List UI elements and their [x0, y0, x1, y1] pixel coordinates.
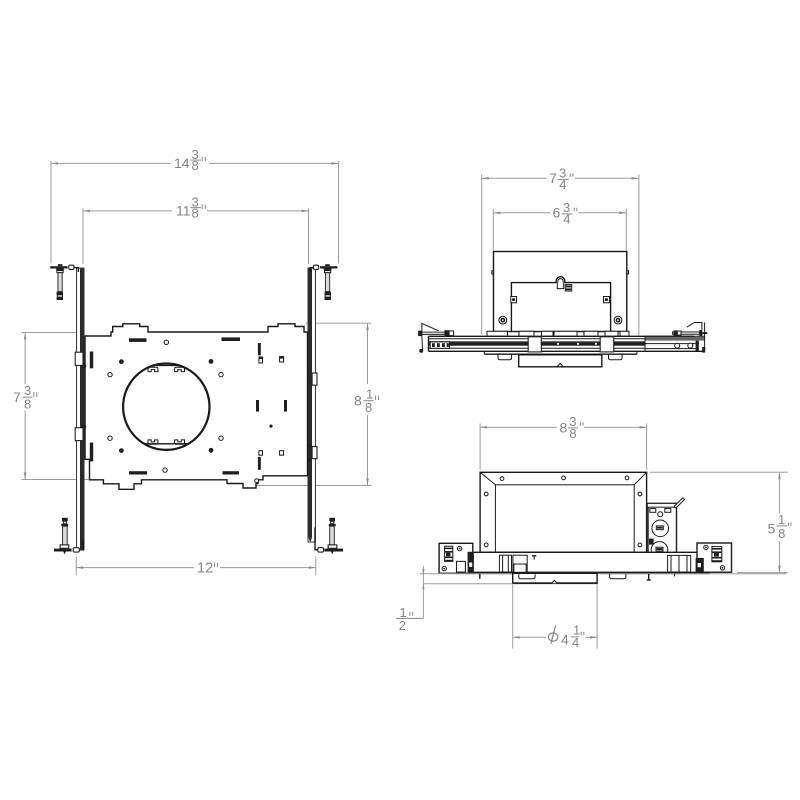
svg-text:7: 7	[13, 389, 21, 405]
svg-text:12: 12	[197, 561, 213, 577]
svg-text:8: 8	[192, 206, 199, 221]
svg-text:4: 4	[563, 212, 570, 227]
svg-text:11: 11	[176, 202, 191, 218]
svg-text:4: 4	[561, 632, 569, 648]
svg-text:8: 8	[569, 426, 576, 441]
svg-text:4: 4	[559, 177, 566, 192]
svg-text:8: 8	[778, 526, 785, 541]
svg-text:8: 8	[192, 158, 199, 173]
svg-text:7: 7	[549, 170, 557, 186]
svg-text:1: 1	[778, 512, 785, 527]
svg-text:4: 4	[572, 635, 579, 650]
svg-text:14: 14	[174, 155, 190, 171]
svg-text:8: 8	[365, 400, 372, 415]
svg-text:2: 2	[399, 618, 406, 633]
svg-text:8: 8	[560, 420, 568, 436]
svg-text:8: 8	[24, 397, 31, 412]
svg-text:8: 8	[354, 393, 362, 409]
svg-text:6: 6	[553, 205, 561, 221]
svg-text:5: 5	[768, 521, 776, 537]
